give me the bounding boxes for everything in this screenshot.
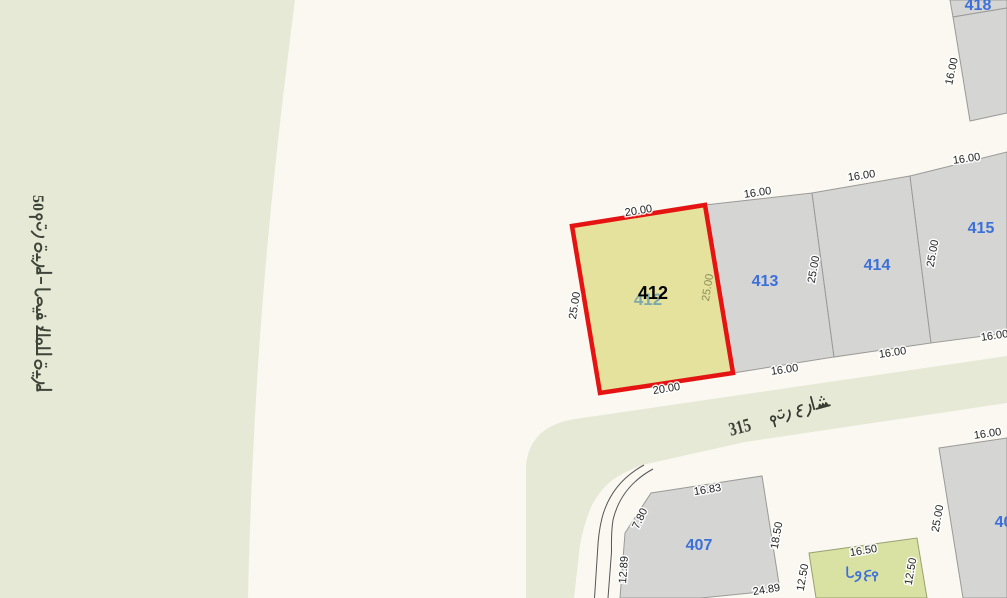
svg-text:412: 412 xyxy=(638,283,668,303)
svg-text:50: 50 xyxy=(29,195,46,211)
svg-text:408: 408 xyxy=(995,514,1007,531)
svg-text:407: 407 xyxy=(686,537,713,554)
svg-text:12.89: 12.89 xyxy=(617,556,631,584)
svg-text:418: 418 xyxy=(965,0,992,14)
svg-text:413: 413 xyxy=(752,273,779,290)
svg-text:415: 415 xyxy=(968,220,995,237)
svg-text:414: 414 xyxy=(864,257,891,274)
